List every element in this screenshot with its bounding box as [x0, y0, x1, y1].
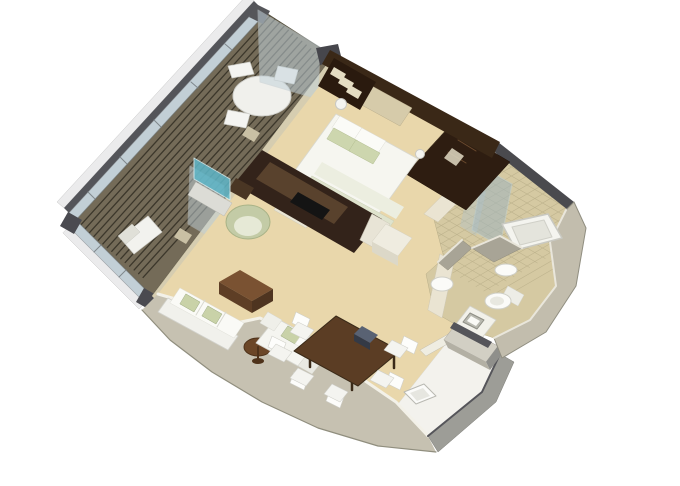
bedside-lamp-1	[336, 99, 347, 110]
floorplan-svg	[0, 0, 680, 486]
side-table-base	[252, 358, 264, 364]
armchair-seat	[234, 216, 262, 236]
toilet-seat	[490, 297, 504, 306]
bedside-lamp-2	[416, 150, 425, 159]
vanity-sink-2	[495, 264, 517, 276]
floorplan-illustration	[0, 0, 680, 486]
vanity-sink-1	[431, 277, 453, 291]
